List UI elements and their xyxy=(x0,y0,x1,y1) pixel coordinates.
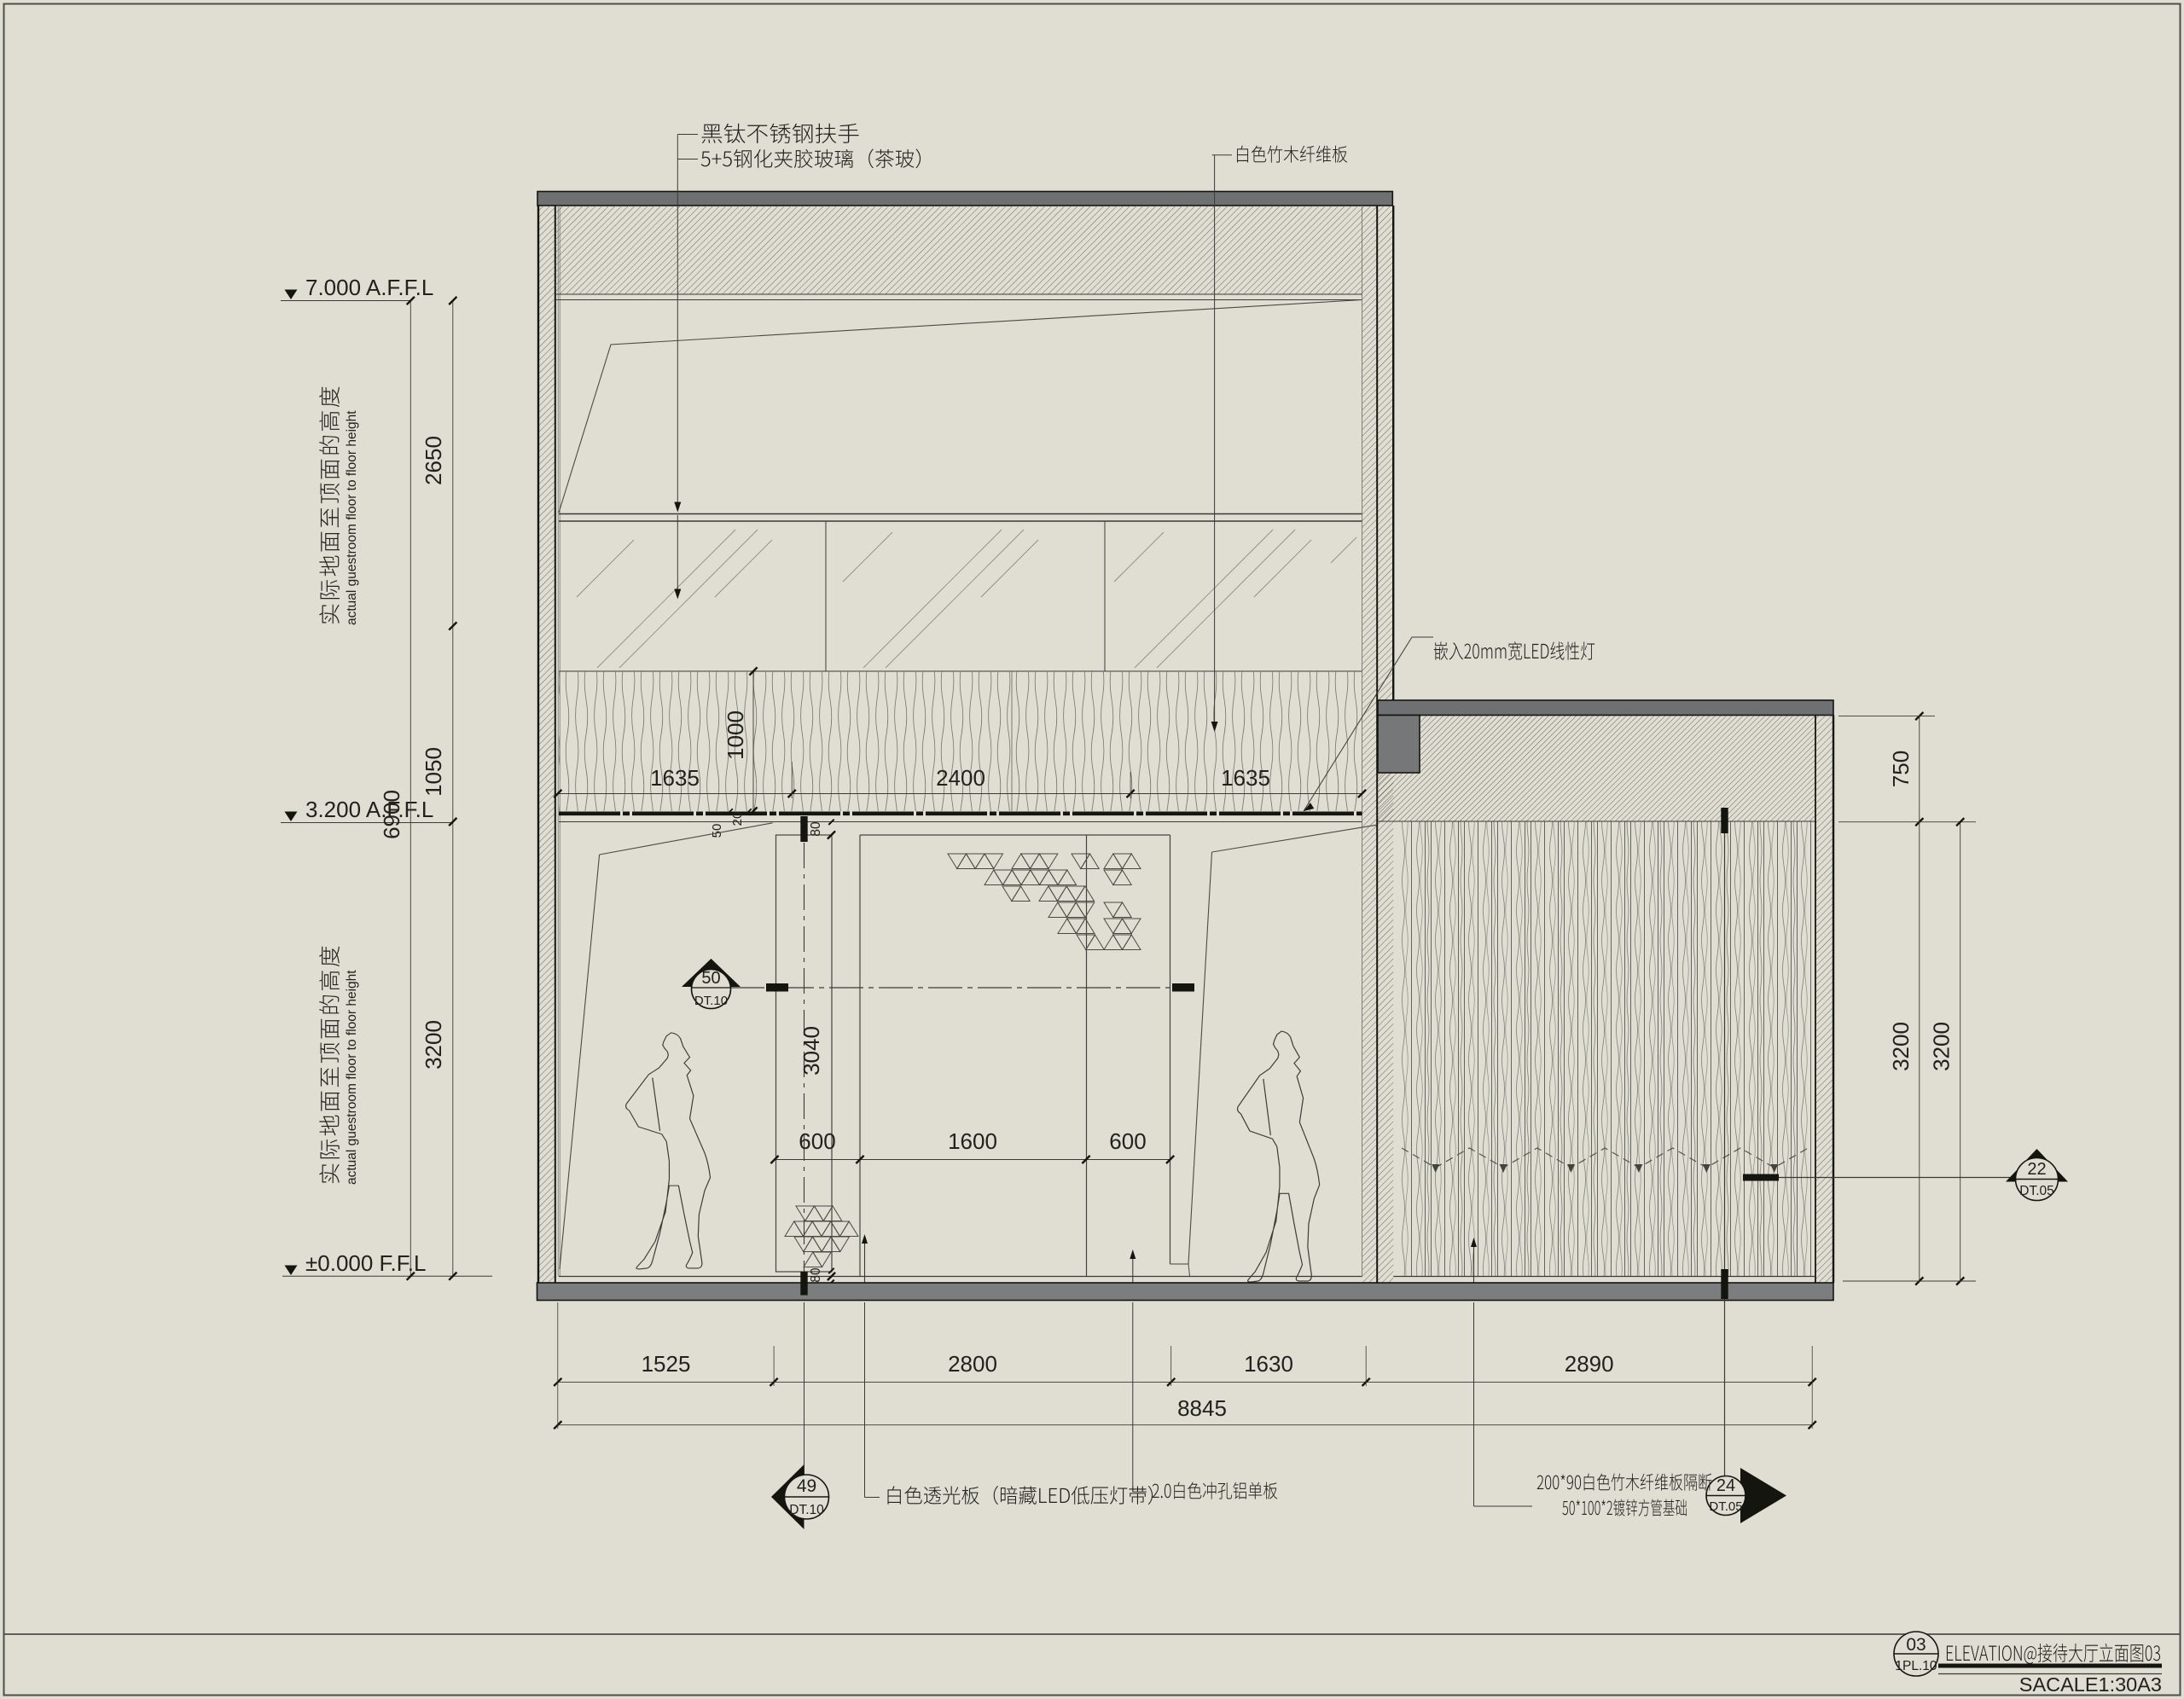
svg-text:3200: 3200 xyxy=(421,1020,446,1070)
svg-text:80: 80 xyxy=(809,1267,823,1283)
svg-text:1600: 1600 xyxy=(948,1128,997,1154)
svg-text:±0.000 F.F.L: ±0.000 F.F.L xyxy=(305,1250,426,1276)
svg-text:600: 600 xyxy=(1109,1128,1146,1154)
svg-text:3040: 3040 xyxy=(799,1026,824,1076)
svg-text:600: 600 xyxy=(799,1128,835,1154)
svg-text:24: 24 xyxy=(1716,1476,1735,1495)
svg-text:6900: 6900 xyxy=(379,790,404,839)
svg-text:1635: 1635 xyxy=(1221,765,1270,791)
svg-text:03: 03 xyxy=(1906,1635,1926,1655)
svg-text:DT.05: DT.05 xyxy=(1709,1499,1742,1514)
svg-text:1525: 1525 xyxy=(642,1351,691,1377)
svg-text:1630: 1630 xyxy=(1244,1351,1293,1377)
svg-text:2890: 2890 xyxy=(1565,1351,1614,1377)
svg-text:1000: 1000 xyxy=(723,710,748,760)
svg-text:22: 22 xyxy=(2027,1160,2046,1179)
svg-text:2650: 2650 xyxy=(421,436,446,485)
svg-text:2400: 2400 xyxy=(936,765,985,791)
svg-text:actual guestroom floor to floo: actual guestroom floor to floor height xyxy=(345,410,359,625)
svg-text:3200: 3200 xyxy=(1929,1022,1955,1071)
svg-text:1635: 1635 xyxy=(650,765,700,791)
svg-text:3200: 3200 xyxy=(1888,1022,1914,1071)
svg-text:2800: 2800 xyxy=(948,1351,997,1377)
svg-text:SACALE1:30A3: SACALE1:30A3 xyxy=(2019,1673,2162,1696)
svg-text:DT.10: DT.10 xyxy=(789,1503,824,1517)
svg-text:actual guestroom floor to floo: actual guestroom floor to floor height xyxy=(345,970,359,1185)
svg-text:1PL.10: 1PL.10 xyxy=(1895,1659,1937,1673)
svg-text:1050: 1050 xyxy=(421,747,446,797)
svg-text:8845: 8845 xyxy=(1177,1395,1227,1421)
svg-text:3.200 A.F.F.L: 3.200 A.F.F.L xyxy=(305,797,433,822)
svg-text:80: 80 xyxy=(809,821,823,837)
svg-text:50: 50 xyxy=(710,824,724,838)
svg-text:DT.05: DT.05 xyxy=(2019,1184,2054,1198)
svg-text:750: 750 xyxy=(1888,751,1914,787)
svg-text:50: 50 xyxy=(701,969,720,988)
svg-text:DT.10: DT.10 xyxy=(694,994,728,1008)
svg-text:20: 20 xyxy=(730,812,745,826)
svg-text:7.000 A.F.F.L: 7.000 A.F.F.L xyxy=(305,275,433,300)
svg-text:49: 49 xyxy=(797,1476,816,1496)
